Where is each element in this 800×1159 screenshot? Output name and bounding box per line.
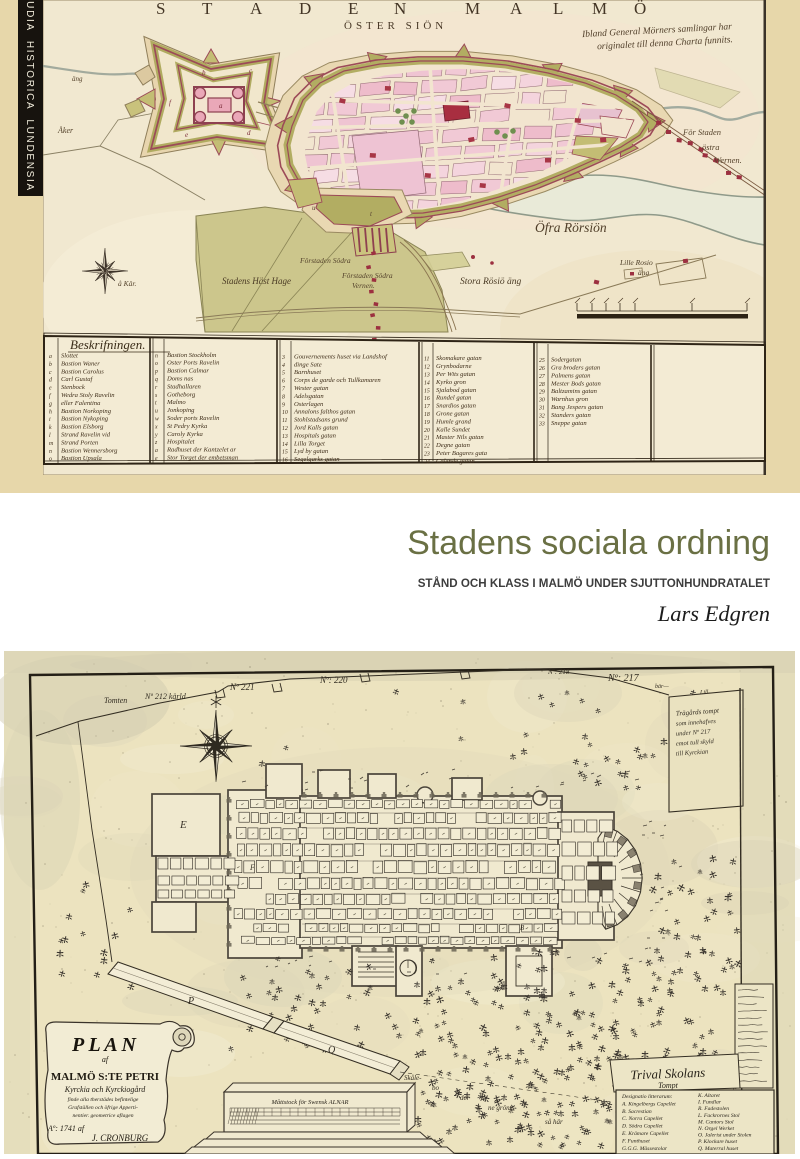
svg-text:B: B	[520, 924, 525, 932]
svg-text:Designatio litterarum:: Designatio litterarum:	[621, 1094, 673, 1100]
svg-text:Standers gatan: Standers gatan	[551, 412, 591, 419]
svg-text:dinge Sate: dinge Sate	[294, 361, 322, 368]
svg-text:G.G.G. Mässestolar: G.G.G. Mässestolar	[622, 1146, 668, 1152]
svg-text:6: 6	[282, 379, 285, 385]
svg-text:Grynbodarne: Grynbodarne	[436, 363, 472, 370]
svg-text:ne grönt: ne grönt	[488, 1104, 513, 1112]
svg-text:Öfra Rörsiön: Öfra Rörsiön	[535, 220, 607, 235]
svg-text:Stor Torget der embetsman: Stor Torget der embetsman	[167, 455, 239, 462]
svg-text:Lille Rosio: Lille Rosio	[619, 258, 653, 267]
svg-text:Radhuset der Kantzelet ar: Radhuset der Kantzelet ar	[166, 447, 236, 454]
svg-text:Slottet: Slottet	[61, 353, 78, 360]
svg-text:Adelsgatan: Adelsgatan	[293, 393, 324, 400]
svg-text:o: o	[155, 361, 158, 367]
svg-text:28: 28	[539, 382, 545, 388]
svg-text:N. Orgel Werket: N. Orgel Werket	[697, 1126, 735, 1132]
svg-text:å Kär.: å Kär.	[118, 279, 136, 288]
svg-text:Bang Jespers gatan: Bang Jespers gatan	[551, 404, 604, 411]
svg-text:För Staden: För Staden	[682, 127, 721, 137]
svg-text:k: k	[49, 425, 52, 431]
svg-text:Bastion Carolus: Bastion Carolus	[61, 368, 104, 375]
svg-text:Soder ports Ravelin: Soder ports Ravelin	[167, 415, 220, 422]
svg-text:bär—: bär—	[655, 684, 669, 690]
svg-text:Tompt: Tompt	[658, 1081, 678, 1090]
svg-text:Bastion Nykoping: Bastion Nykoping	[61, 416, 109, 423]
svg-text:eller Falentina: eller Falentina	[61, 400, 101, 407]
svg-text:Bastion Upsala: Bastion Upsala	[61, 455, 103, 462]
svg-text:14: 14	[282, 441, 288, 448]
svg-text:Malmo: Malmo	[166, 399, 186, 406]
svg-text:Trival Skolans: Trival Skolans	[630, 1065, 705, 1083]
svg-text:c: c	[49, 370, 52, 376]
svg-text:Tomten: Tomten	[104, 696, 127, 705]
svg-text:Sjalabod gatan: Sjalabod gatan	[436, 387, 477, 394]
svg-text:11: 11	[424, 357, 429, 363]
svg-text:Förstaden Södra: Förstaden Södra	[299, 256, 351, 265]
svg-text:8: 8	[282, 394, 285, 400]
svg-text:Nº 212 kärld: Nº 212 kärld	[144, 692, 187, 701]
svg-text:12: 12	[282, 426, 288, 432]
svg-text:19: 19	[424, 420, 430, 426]
svg-text:Jord Kalls gatan: Jord Kalls gatan	[294, 425, 339, 432]
svg-text:Calende gatan: Calende gatan	[436, 458, 475, 465]
svg-text:Gotheborg: Gotheborg	[167, 391, 196, 398]
svg-text:P L A N: P L A N	[71, 1034, 137, 1056]
svg-text:Strand Porten: Strand Porten	[61, 439, 99, 446]
svg-text:5: 5	[282, 371, 285, 377]
svg-text:13: 13	[282, 434, 288, 440]
svg-text:Bastion Stockholm: Bastion Stockholm	[167, 352, 217, 359]
svg-text:Grone gatan: Grone gatan	[436, 410, 470, 417]
svg-text:x: x	[154, 424, 158, 430]
svg-text:3: 3	[281, 355, 285, 361]
svg-text:F. Funthuset: F. Funthuset	[621, 1138, 650, 1144]
svg-text:R. Fadestolen: R. Fadestolen	[697, 1106, 729, 1112]
svg-text:u: u	[155, 409, 158, 415]
svg-text:Rundel gatan: Rundel gatan	[435, 395, 472, 402]
svg-text:Beskrifningen.: Beskrifningen.	[70, 337, 145, 352]
svg-text:33: 33	[538, 421, 545, 427]
svg-text:Per Wits gatan: Per Wits gatan	[435, 371, 476, 378]
svg-text:Måttstock för Swensk ALNAR: Måttstock för Swensk ALNAR	[271, 1099, 349, 1106]
svg-text:nentier. geometrice aflagen: nentier. geometrice aflagen	[72, 1112, 133, 1119]
svg-text:ÖSTER SIÖN: ÖSTER SIÖN	[344, 20, 447, 32]
svg-text:15: 15	[282, 450, 288, 456]
svg-text:Osterlagen: Osterlagen	[294, 401, 324, 408]
svg-text:Snardios gatan: Snardios gatan	[436, 403, 477, 410]
svg-text:e: e	[185, 131, 188, 139]
svg-text:Wernen.: Wernen.	[714, 155, 742, 165]
svg-text:Wester gatan: Wester gatan	[294, 385, 329, 392]
svg-text:Degne gatan: Degne gatan	[435, 442, 471, 449]
svg-text:h: h	[49, 409, 52, 415]
svg-text:Stenbock: Stenbock	[61, 384, 86, 391]
svg-text:äng: äng	[72, 75, 83, 83]
svg-text:22: 22	[424, 444, 430, 450]
svg-text:14: 14	[424, 379, 430, 386]
svg-text:Warnhus gron: Warnhus gron	[551, 396, 589, 403]
svg-text:e: e	[155, 456, 158, 462]
svg-text:Q. Materral huset: Q. Materral huset	[698, 1146, 739, 1152]
svg-text:11: 11	[282, 418, 287, 424]
svg-text:25: 25	[539, 358, 545, 364]
svg-text:A. Kingelbergs Capellet: A. Kingelbergs Capellet	[621, 1101, 676, 1107]
svg-text:Jonkoping: Jonkoping	[167, 407, 195, 414]
svg-text:12: 12	[424, 365, 430, 371]
svg-text:B. Sacrestian: B. Sacrestian	[622, 1109, 652, 1115]
svg-text:Bastion Elsborg: Bastion Elsborg	[61, 424, 104, 431]
svg-text:Master Nils gatan: Master Nils gatan	[435, 434, 484, 441]
svg-text:Grafställen och öfrige Apperti: Grafställen och öfrige Apperti-	[68, 1104, 138, 1111]
svg-text:Caroly Kyrka: Caroly Kyrka	[167, 431, 204, 438]
svg-text:St Pedry Kyrka: St Pedry Kyrka	[167, 423, 208, 430]
svg-text:Sodergatan: Sodergatan	[551, 357, 582, 364]
svg-text:Bastion Calmar: Bastion Calmar	[167, 368, 209, 375]
svg-text:Bastion Norkoping: Bastion Norkoping	[61, 408, 112, 415]
svg-text:Lyd by gatan: Lyd by gatan	[293, 448, 329, 455]
svg-text:d: d	[49, 378, 52, 384]
svg-text:Bastion Wennersborg: Bastion Wennersborg	[61, 447, 118, 454]
svg-text:b: b	[202, 69, 206, 77]
svg-text:20: 20	[424, 428, 430, 434]
svg-text:a: a	[49, 354, 52, 360]
svg-text:så här: så här	[545, 1118, 563, 1126]
svg-text:Nº: 218: Nº: 218	[547, 668, 570, 676]
svg-text:d: d	[247, 129, 251, 137]
svg-text:Strand Ravelin vid: Strand Ravelin vid	[61, 432, 111, 439]
svg-text:18: 18	[424, 412, 430, 418]
svg-text:Oster Ports Ravelin: Oster Ports Ravelin	[167, 360, 220, 367]
svg-text:Nº: 217: Nº: 217	[607, 673, 640, 684]
svg-text:Lilla Torget: Lilla Torget	[293, 440, 325, 447]
svg-text:q: q	[155, 377, 158, 383]
svg-text:Gouvernements huset via Landsh: Gouvernements huset via Landshof	[294, 353, 388, 360]
svg-text:Bastion Waner: Bastion Waner	[61, 360, 100, 367]
svg-text:Hospitals gatan: Hospitals gatan	[293, 432, 337, 439]
svg-text:o: o	[49, 457, 52, 463]
svg-text:Stadens Häst Hage: Stadens Häst Hage	[222, 276, 291, 286]
svg-text:n: n	[49, 449, 52, 455]
svg-text:E: E	[179, 819, 187, 831]
svg-text:n: n	[155, 353, 158, 359]
svg-text:J. CRONBURG: J. CRONBURG	[92, 1133, 149, 1143]
svg-text:u: u	[312, 204, 316, 212]
svg-text:O. Jalerist under Stolen: O. Jalerist under Stolen	[698, 1133, 752, 1139]
svg-text:P. Klockare huset: P. Klockare huset	[697, 1139, 737, 1145]
svg-text:23: 23	[424, 451, 430, 457]
svg-text:4: 4	[282, 362, 285, 369]
svg-text:Palmens gatan: Palmens gatan	[550, 372, 591, 379]
svg-text:p: p	[154, 369, 158, 375]
svg-text:Carl Gustaf: Carl Gustaf	[61, 376, 93, 383]
svg-text:finde alla therstädes befintel: finde alla therstädes befintelige	[68, 1096, 139, 1103]
svg-text:y: y	[154, 432, 158, 438]
svg-text:Kalle Sundet: Kalle Sundet	[435, 426, 470, 433]
svg-text:E. Krämare Capellet: E. Krämare Capellet	[621, 1131, 669, 1137]
svg-text:K. Altaret: K. Altaret	[697, 1093, 720, 1099]
svg-text:Doms nas: Doms nas	[166, 376, 194, 383]
svg-text:Vernen.: Vernen.	[352, 281, 375, 290]
svg-text:Peter Bagares gata: Peter Bagares gata	[435, 450, 488, 457]
svg-text:g: g	[49, 401, 52, 407]
svg-text:Nº 221: Nº 221	[229, 682, 255, 692]
svg-text:16: 16	[282, 458, 288, 464]
svg-text:Åker: Åker	[57, 126, 74, 135]
svg-text:26: 26	[539, 366, 545, 372]
svg-text:I. Fundlar: I. Fundlar	[697, 1100, 722, 1106]
svg-text:31: 31	[538, 406, 545, 412]
svg-text:Segelgarks gatan: Segelgarks gatan	[294, 456, 340, 463]
svg-text:Förstaden Södra: Förstaden Södra	[341, 271, 393, 280]
svg-text:16: 16	[424, 396, 430, 402]
svg-text:32: 32	[538, 413, 545, 419]
svg-text:15: 15	[424, 388, 430, 394]
svg-text:Stadhallaren: Stadhallaren	[167, 383, 202, 390]
svg-text:Sneppe gatan: Sneppe gatan	[551, 420, 587, 427]
svg-text:Hospitalet: Hospitalet	[166, 439, 195, 446]
svg-text:Skåle-: Skåle-	[404, 1074, 422, 1082]
svg-text:Q: Q	[328, 1045, 336, 1056]
svg-text:Aº: 1741 af: Aº: 1741 af	[47, 1124, 86, 1133]
svg-text:w: w	[155, 417, 159, 423]
svg-text:e: e	[49, 386, 52, 392]
svg-text:Corps de garde och Tullkamaren: Corps de garde och Tullkamaren	[294, 377, 381, 384]
svg-text:21: 21	[424, 436, 430, 442]
svg-text:Annalons falthos gatan: Annalons falthos gatan	[293, 409, 356, 416]
svg-text:Kyrckia och Kyrckiogård: Kyrckia och Kyrckiogård	[64, 1085, 146, 1094]
svg-text:L. Fackrornes Stol: L. Fackrornes Stol	[697, 1113, 740, 1119]
svg-text:bo: bo	[432, 1084, 440, 1092]
svg-text:D. Södra Capellet: D. Södra Capellet	[621, 1124, 663, 1130]
svg-text:P: P	[187, 996, 194, 1007]
svg-text:Mester Bods gatan: Mester Bods gatan	[550, 380, 602, 387]
svg-text:Humle grand: Humle grand	[435, 418, 472, 425]
svg-text:b: b	[49, 362, 52, 368]
svg-text:Skomakare gatan: Skomakare gatan	[436, 355, 482, 362]
svg-text:Baltzamins gatan: Baltzamins gatan	[551, 388, 598, 395]
svg-text:a: a	[155, 448, 158, 454]
svg-text:9: 9	[282, 402, 285, 408]
svg-text:Stora Rösiö äng: Stora Rösiö äng	[460, 277, 521, 287]
svg-text:10: 10	[282, 410, 288, 416]
svg-text:m: m	[49, 441, 53, 447]
svg-text:östra: östra	[702, 142, 719, 152]
svg-text:30: 30	[538, 398, 545, 404]
svg-text:Wedra Stoly Ravelin: Wedra Stoly Ravelin	[61, 392, 115, 399]
svg-text:24: 24	[424, 458, 430, 465]
svg-text:M. Cantors Stol: M. Cantors Stol	[697, 1119, 734, 1125]
svg-text:13: 13	[424, 372, 430, 378]
svg-text:Barnhuset: Barnhuset	[294, 369, 321, 376]
svg-text:Nº: 220: Nº: 220	[319, 675, 348, 685]
svg-text:Stohlstadsans grund: Stohlstadsans grund	[294, 417, 348, 424]
svg-text:C. Norra Capellet: C. Norra Capellet	[622, 1116, 663, 1122]
svg-text:der: der	[460, 1094, 470, 1102]
svg-text:29: 29	[539, 390, 545, 396]
svg-text:a: a	[219, 102, 223, 110]
svg-text:MALMÖ S:TE PETRI: MALMÖ S:TE PETRI	[51, 1070, 159, 1083]
svg-text:Kyrko gron: Kyrko gron	[435, 379, 467, 386]
svg-text:Gra broders gatan: Gra broders gatan	[551, 365, 601, 372]
svg-text:F: F	[249, 863, 255, 872]
